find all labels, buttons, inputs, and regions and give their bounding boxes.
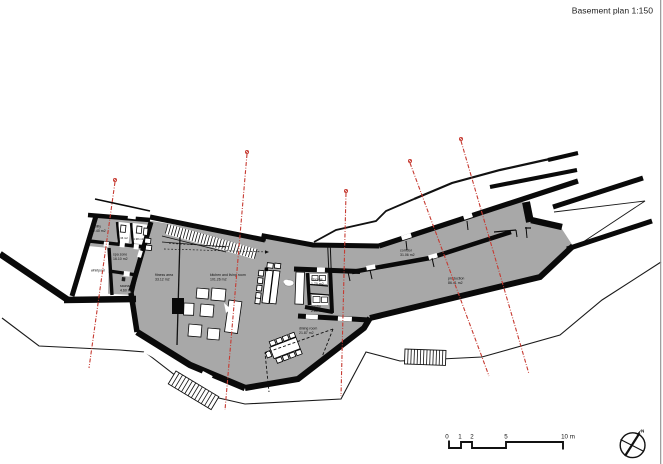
svg-text:16.10 m2: 16.10 m2 — [113, 257, 128, 261]
svg-text:33.12 m2: 33.12 m2 — [155, 278, 170, 282]
svg-text:10 m: 10 m — [561, 434, 575, 441]
svg-text:spa zone: spa zone — [113, 253, 127, 257]
svg-text:utility: utility — [93, 225, 101, 229]
svg-text:1.70 m2: 1.70 m2 — [311, 282, 324, 286]
svg-text:0: 0 — [445, 434, 449, 441]
svg-text:1.98 m2: 1.98 m2 — [134, 237, 144, 241]
svg-text:2: 2 — [470, 434, 474, 441]
svg-text:production: production — [448, 277, 464, 281]
svg-text:corridor: corridor — [400, 249, 413, 253]
svg-text:31.06 m2: 31.06 m2 — [400, 253, 415, 257]
svg-text:101.26 m2: 101.26 m2 — [210, 278, 227, 282]
svg-text:storage: storage — [311, 278, 323, 282]
svg-text:N: N — [641, 429, 645, 434]
svg-text:2.40 m2: 2.40 m2 — [93, 229, 106, 233]
svg-text:2.81 m2: 2.81 m2 — [311, 309, 324, 313]
svg-text:sauna: sauna — [120, 284, 130, 288]
svg-text:1: 1 — [458, 434, 462, 441]
svg-text:kitchen and living room: kitchen and living room — [210, 273, 246, 277]
svg-text:1.36 m2: 1.36 m2 — [118, 236, 128, 240]
svg-text:Basement plan 1:150: Basement plan 1:150 — [572, 6, 653, 16]
svg-text:pantry: pantry — [311, 305, 321, 309]
svg-text:dining room: dining room — [299, 327, 317, 331]
svg-text:4.60 m2: 4.60 m2 — [120, 289, 133, 293]
svg-text:fitness area: fitness area — [155, 273, 173, 277]
svg-text:5: 5 — [504, 434, 508, 441]
svg-text:21.87 m2: 21.87 m2 — [299, 331, 314, 335]
